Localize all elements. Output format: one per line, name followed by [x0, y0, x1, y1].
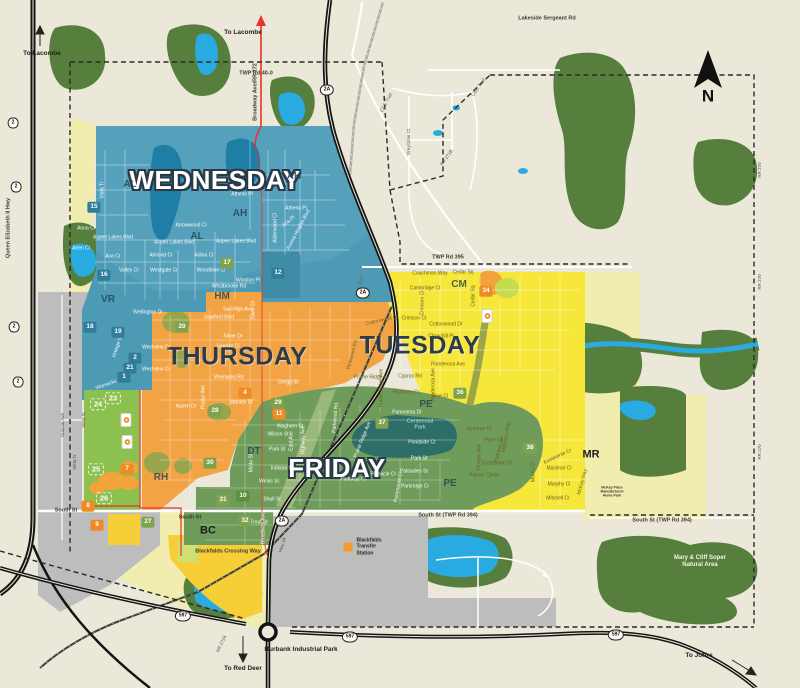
map-label: Pinetree Cl: [467, 428, 492, 433]
map-label: Greystone Ct: [407, 129, 412, 156]
map-label: Cedar Sq: [452, 271, 473, 276]
map-label: Palmer Circle: [469, 474, 499, 479]
highway-shield: 597: [175, 611, 191, 622]
map-label: AH: [287, 172, 301, 182]
burbank-industrial-park: Burbank Industrial Park: [264, 647, 337, 654]
map-label: RR 270: [758, 162, 763, 177]
map-label: Minto St: [250, 454, 255, 472]
map-label: Westgate Cr: [150, 269, 178, 274]
zone-marker: 12: [271, 268, 284, 279]
zone-marker: 27: [141, 517, 154, 528]
map-label: McKay Place Manufactured Home Park: [601, 486, 624, 499]
map-label: RR 270: [758, 274, 763, 289]
zone-marker: 24: [90, 398, 106, 410]
map-label: Pinewood Rd: [347, 340, 360, 370]
development-logo-icon: [482, 309, 493, 323]
map-label: Adina Cl: [195, 254, 214, 259]
map-label: Anna Cl: [77, 227, 95, 232]
map-label: HM: [214, 292, 230, 302]
map-label: Ava Cr: [105, 255, 120, 260]
map-label: Queen Elizabeth II Hwy: [6, 198, 12, 258]
map-label: Blackfalds Crossing Way: [195, 549, 261, 555]
map-label: Eastpointe Cr: [543, 448, 573, 465]
map-label: Almond Cr: [149, 254, 173, 259]
zone-marker: 34: [479, 286, 492, 297]
map-label: Palisades St: [400, 470, 428, 475]
zone-marker: 37: [375, 418, 388, 429]
map-label: Crimson Cl: [421, 291, 426, 316]
highway-shield: 597: [342, 632, 358, 643]
map-label: South St (TWP Rd 394): [418, 513, 477, 519]
zone-title-wednesday: WEDNESDAY: [129, 167, 300, 193]
development-logo-icon: [121, 413, 132, 427]
highway-shield: 2: [8, 118, 19, 129]
zone-marker: 32: [238, 516, 251, 527]
map-label: Mitchell Cr: [546, 497, 570, 502]
highway-shield: 2A: [356, 288, 370, 299]
map-label: Arlen Cl: [72, 247, 90, 252]
map-label: Murphy Cl: [548, 483, 571, 488]
map-label: Cyprus Rd: [398, 375, 422, 380]
zone-marker: 4: [239, 388, 252, 399]
map-label: South St: [179, 515, 202, 521]
map-label: Cottonwood Dr: [429, 323, 462, 328]
map-label: Sunridge Ave: [223, 308, 253, 313]
map-label: Park St: [269, 448, 285, 453]
zone-marker: 7: [121, 464, 134, 475]
zone-marker: 31: [216, 495, 229, 506]
zone-title-tuesday: TUESDAY: [360, 334, 481, 359]
map-label: Cottonwood Dr: [365, 315, 399, 327]
north-label: N: [702, 88, 714, 105]
map-label: Waghorn St: [277, 425, 303, 430]
highway-shield: 597: [608, 630, 624, 641]
map-label: Gregg St: [278, 381, 298, 386]
zone-marker: 1: [118, 372, 131, 383]
map-label: MR: [582, 450, 599, 461]
map-label: RH: [154, 473, 168, 483]
blackfalds-zone-map: WEDNESDAYTHURSDAYTUESDAYFRIDAYNALAHALAHV…: [0, 0, 800, 688]
dest-red-deer: To Red Deer: [224, 666, 262, 673]
map-label: McKay Way: [577, 469, 589, 496]
map-label: Vista Tr: [101, 182, 106, 199]
map-label: South St (TWP Rd 394): [632, 518, 691, 524]
map-label: RR 270: [758, 444, 763, 459]
map-label: Stanley St: [230, 401, 253, 406]
map-label: Prairie Ridge Cl: [353, 376, 388, 381]
map-label: Parkway Cl: [340, 478, 365, 483]
map-label: Athens Pl: [231, 193, 252, 198]
zone-marker: 10: [236, 491, 249, 502]
map-label: Pondside Cr: [408, 441, 436, 446]
map-label: BC: [200, 526, 216, 537]
zone-marker: 28: [208, 406, 221, 417]
transfer-station-label: Blackfalds Transfer Station: [356, 538, 381, 557]
map-label: Stanford Blvd: [204, 316, 234, 321]
map-label: Aspen Lakes Blvd: [93, 236, 133, 241]
map-label: East Ave: [290, 431, 295, 451]
zone-marker: 25: [88, 463, 104, 475]
zone-marker: 20: [175, 322, 188, 333]
zone-marker: 9: [91, 520, 104, 531]
map-label: Westview Cr: [142, 346, 170, 351]
zone-marker: 18: [83, 322, 96, 333]
map-label: Pine Cl: [432, 395, 448, 400]
map-label: AL: [123, 180, 136, 190]
dest-lacombe-broadway: To Lacombe: [224, 30, 262, 37]
map-label: Coachman Way: [412, 272, 447, 277]
map-label: Maclean Cl: [546, 467, 571, 472]
map-label: Womacks Rd: [214, 376, 244, 381]
map-label: Vista Tr: [73, 454, 78, 469]
development-logo-icon: [122, 435, 133, 449]
map-label: Silver Dr: [223, 335, 242, 340]
zone-marker: 17: [220, 258, 233, 269]
zone-marker: 8: [82, 501, 95, 512]
map-label: Sunrise Cl: [216, 345, 239, 350]
map-label: Panorama Dr: [392, 411, 422, 416]
map-label: Hwy 2A: [278, 537, 287, 553]
map-label: Lakeside Sergeant Rd: [518, 16, 575, 22]
map-label: Shull St: [263, 498, 280, 503]
map-label: Aspen Lakes Blvd: [216, 240, 256, 245]
map-label: Winks St: [259, 480, 279, 485]
map-label: Alderwood Cl: [274, 213, 279, 243]
zone-marker: 19: [111, 327, 124, 338]
zone-marker: 2: [129, 353, 142, 364]
natural-area-label: Mary & Cliff Soper Natural Area: [674, 555, 726, 569]
map-label: Woodbine Cl: [197, 269, 226, 274]
map-label: Silver Dr: [252, 300, 257, 319]
label-layer: WEDNESDAYTHURSDAYTUESDAYFRIDAYNALAHALAHV…: [0, 0, 800, 688]
map-label: RR 272A: [216, 635, 228, 653]
map-label: Morris Cl: [532, 462, 537, 482]
highway-shield: 2: [11, 182, 22, 193]
map-label: South St: [55, 508, 78, 514]
transfer-station-icon: [344, 543, 353, 552]
zone-marker: 36: [453, 388, 466, 399]
map-label: Plumtree Cr: [393, 391, 420, 396]
zone-marker: 29: [271, 398, 284, 409]
dest-lacombe-west: To Lacombe: [23, 51, 61, 58]
map-label: Park St: [411, 457, 427, 462]
map-label: Crimson Ct: [401, 317, 426, 322]
map-label: C&E Trail: [380, 93, 394, 114]
map-label: Broadway Ave: [262, 512, 267, 544]
map-label: Pinnacle Cl: [370, 473, 395, 478]
map-label: Poplar Ave: [202, 385, 207, 409]
map-label: RR 271B: [440, 149, 454, 167]
zone-marker: 11: [273, 409, 286, 420]
map-label: Aspen Lakes Blvd: [154, 241, 194, 246]
map-label: Aria Pl: [282, 215, 297, 228]
map-label: CM: [451, 280, 467, 290]
zone-marker: 38: [523, 443, 536, 454]
dest-joffre: To Joffre: [685, 653, 712, 660]
map-label: Ponderosa Ave: [431, 363, 465, 368]
map-label: Vista Tr: [82, 412, 87, 427]
map-label: Vintage Cl: [112, 335, 124, 358]
zone-marker: 15: [87, 202, 100, 213]
highway-shield: 2A: [275, 516, 289, 527]
map-label: Westview Cr: [142, 368, 170, 373]
map-label: Churchill Pl: [428, 335, 453, 340]
highway-shield: 2A: [320, 85, 334, 96]
map-label: Wilson St: [267, 433, 288, 438]
map-label: Wellington Dr: [133, 311, 163, 316]
zone-marker: 23: [105, 392, 121, 404]
centennial-park-label: Centennial Park: [407, 419, 433, 432]
map-label: C&E Trail: [471, 78, 487, 98]
highway-shield: 2: [9, 322, 20, 333]
map-label: Parkridge Cr: [401, 485, 429, 490]
map-label: Eastpointe Dr: [482, 462, 512, 467]
map-label: AH: [233, 209, 247, 219]
zone-marker: 26: [96, 492, 112, 504]
highway-shield: 2: [13, 377, 24, 388]
map-label: Aspen Dr: [176, 405, 197, 410]
map-label: Cedar Sq: [472, 285, 477, 306]
zone-marker: 30: [203, 458, 216, 469]
map-label: Arrowwood Cl: [175, 224, 206, 229]
map-label: TWP Rd 395: [432, 255, 464, 261]
map-label: Valley Cr: [119, 269, 139, 274]
map-label: Athena Pl: [285, 207, 307, 212]
map-label: VR: [101, 295, 115, 305]
map-label: McKinley Way: [502, 421, 512, 453]
map-label: Westbrooke Rd: [212, 285, 246, 290]
map-label: Parkwood Rd: [332, 403, 340, 433]
zone-marker: 16: [97, 270, 110, 281]
map-label: Duncan Ave: [61, 413, 66, 437]
map-label: Indiana St: [271, 467, 294, 472]
map-label: Highway Ave: [302, 426, 307, 455]
map-label: PE: [443, 479, 456, 489]
map-label: Broadway Ave/RR 272: [253, 63, 259, 121]
